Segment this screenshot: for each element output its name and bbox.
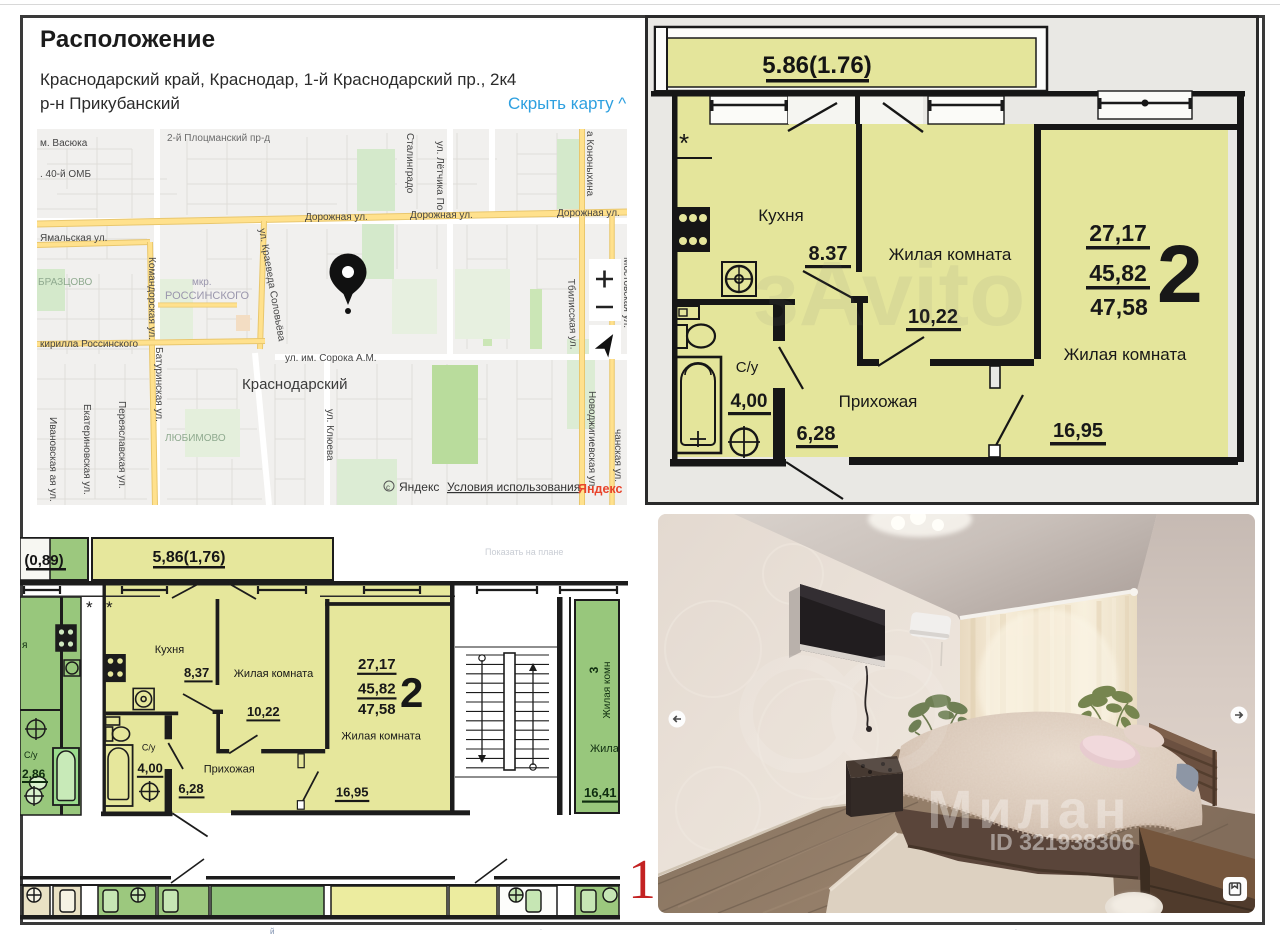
- svg-text:Яндекс: Яндекс: [578, 482, 623, 496]
- svg-text:10,22: 10,22: [247, 704, 280, 719]
- svg-text:Жилая комната: Жилая комната: [234, 668, 314, 680]
- svg-text:4,00: 4,00: [731, 391, 768, 412]
- svg-text:ул. им. Сорока А.М.: ул. им. Сорока А.М.: [285, 353, 377, 364]
- svg-text:ул. Лётчика По: ул. Лётчика По: [434, 141, 445, 211]
- svg-text:м. Васюка: м. Васюка: [40, 138, 88, 149]
- svg-text:27,17: 27,17: [1089, 220, 1147, 246]
- svg-text:С/у: С/у: [736, 359, 759, 376]
- svg-text:47,58: 47,58: [1090, 294, 1148, 320]
- svg-text:2: 2: [400, 669, 423, 716]
- svg-text:ЛЮБИМОВО: ЛЮБИМОВО: [165, 433, 226, 444]
- svg-text:я: я: [22, 640, 27, 651]
- svg-text:5.86(1.76): 5.86(1.76): [762, 52, 871, 79]
- svg-text:Ивановская ая ул.: Ивановская ая ул.: [47, 417, 58, 502]
- svg-text:Жила: Жила: [590, 743, 620, 755]
- svg-text:ул. Клюева: ул. Клюева: [324, 409, 335, 461]
- svg-text:(0,89): (0,89): [24, 552, 63, 569]
- svg-text:кирилла Россинского: кирилла Россинского: [40, 339, 138, 350]
- svg-text:Мостовская ул.: Мостовская ул.: [621, 257, 627, 328]
- svg-text:Переяславская ул.: Переяславская ул.: [116, 401, 127, 489]
- svg-text:47,58: 47,58: [358, 701, 396, 718]
- svg-text:чанская ул.: чанская ул.: [612, 429, 623, 482]
- svg-text:Ямальская ул.: Ямальская ул.: [40, 233, 107, 244]
- svg-text:5,86(1,76): 5,86(1,76): [153, 549, 226, 566]
- svg-text:6,28: 6,28: [178, 781, 203, 796]
- svg-text:Тбилисская ул.: Тбилисская ул.: [565, 279, 579, 350]
- svg-text:Кухня: Кухня: [758, 206, 804, 225]
- svg-text:Командорская ул.: Командорская ул.: [146, 257, 157, 340]
- svg-text:Краснодарский: Краснодарский: [242, 376, 347, 393]
- svg-text:45,82: 45,82: [1089, 260, 1147, 286]
- svg-text:*: *: [106, 598, 113, 617]
- svg-text:. 40-й ОМБ: . 40-й ОМБ: [40, 169, 91, 180]
- svg-text:Дорожная ул.: Дорожная ул.: [410, 210, 473, 221]
- svg-text:Яндекс: Яндекс: [399, 480, 439, 494]
- svg-text:Условия использования: Условия использования: [447, 480, 580, 494]
- svg-text:Дорожная ул.: Дорожная ул.: [305, 212, 368, 223]
- svg-text:С/у: С/у: [24, 750, 38, 760]
- svg-text:а Кононыхина: а Кононыхина: [584, 131, 595, 197]
- svg-text:мкр.: мкр.: [192, 277, 212, 288]
- svg-text:Показать на плане: Показать на плане: [485, 547, 563, 557]
- svg-text:4,00: 4,00: [138, 760, 163, 775]
- svg-text:зAvito: зAvito: [753, 243, 1025, 345]
- svg-text:2,86: 2,86: [22, 767, 46, 781]
- svg-text:8,37: 8,37: [184, 665, 209, 680]
- svg-text:Прихожая: Прихожая: [839, 392, 918, 411]
- svg-text:6,28: 6,28: [797, 423, 836, 445]
- svg-text:РОССИНСКОГО: РОССИНСКОГО: [165, 290, 250, 302]
- svg-text:27,17: 27,17: [358, 656, 396, 673]
- svg-text:Жилая комната: Жилая комната: [341, 730, 421, 742]
- svg-text:3: 3: [587, 666, 601, 673]
- svg-text:*: *: [86, 598, 93, 617]
- svg-text:16,95: 16,95: [336, 785, 369, 800]
- svg-text:16,95: 16,95: [1053, 420, 1103, 442]
- svg-text:*: *: [679, 128, 689, 158]
- svg-text:45,82: 45,82: [358, 680, 396, 697]
- svg-text:Прихожая: Прихожая: [204, 763, 255, 775]
- svg-text:С/у: С/у: [142, 743, 156, 753]
- svg-text:Екатериновская ул.: Екатериновская ул.: [81, 404, 92, 495]
- svg-text:2: 2: [1157, 229, 1203, 320]
- svg-text:2-й Плоцманский пр-д: 2-й Плоцманский пр-д: [167, 133, 270, 144]
- svg-text:16,41: 16,41: [584, 785, 617, 800]
- svg-text:БРАЗЦОВО: БРАЗЦОВО: [38, 277, 92, 288]
- svg-text:Жилая комната: Жилая комната: [1064, 345, 1187, 364]
- svg-text:Дорожная ул.: Дорожная ул.: [557, 208, 620, 219]
- svg-text:Новоджигиевская ул.: Новоджигиевская ул.: [586, 391, 597, 489]
- svg-text:Батуринская ул.: Батуринская ул.: [153, 347, 164, 422]
- svg-text:c: c: [386, 483, 390, 492]
- svg-text:Кухня: Кухня: [155, 644, 184, 656]
- svg-text:ID 321938306: ID 321938306: [990, 829, 1135, 855]
- svg-text:Жилая комн: Жилая комн: [602, 662, 613, 719]
- svg-text:Сталинградо: Сталинградо: [404, 133, 415, 194]
